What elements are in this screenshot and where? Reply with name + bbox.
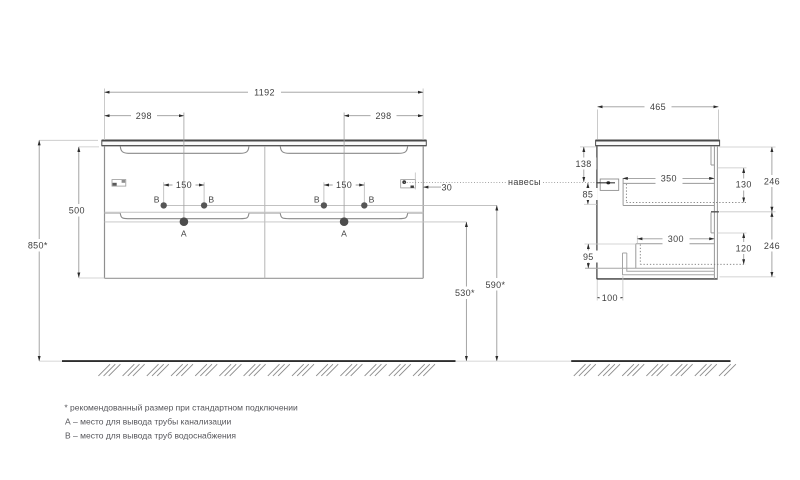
svg-text:350: 350 — [661, 174, 677, 184]
svg-text:B: B — [154, 194, 160, 204]
svg-text:530*: 530* — [455, 288, 475, 298]
svg-text:навесы: навесы — [508, 177, 541, 187]
svg-text:30: 30 — [441, 182, 452, 192]
svg-text:A: A — [181, 229, 187, 239]
svg-text:B: B — [369, 194, 375, 204]
svg-text:А – место для вывода трубы кан: А – место для вывода трубы канализации — [65, 417, 232, 427]
svg-text:95: 95 — [583, 252, 594, 262]
svg-text:300: 300 — [668, 234, 684, 244]
svg-text:85: 85 — [583, 189, 594, 199]
svg-text:100: 100 — [602, 293, 618, 303]
svg-text:1192: 1192 — [254, 87, 275, 97]
svg-text:* рекомендованный размер при с: * рекомендованный размер при стандартном… — [64, 403, 298, 413]
svg-text:500: 500 — [69, 206, 85, 216]
svg-text:590*: 590* — [485, 280, 505, 290]
svg-text:B: B — [208, 194, 214, 204]
svg-text:246: 246 — [764, 241, 780, 251]
svg-text:120: 120 — [736, 243, 752, 253]
svg-text:130: 130 — [736, 180, 752, 190]
svg-text:138: 138 — [576, 159, 592, 169]
svg-text:A: A — [341, 229, 347, 239]
svg-text:В – место для вывода труб водо: В – место для вывода труб водоснабжения — [65, 431, 236, 441]
svg-text:298: 298 — [375, 111, 391, 121]
svg-text:298: 298 — [136, 111, 152, 121]
svg-text:850*: 850* — [28, 241, 48, 251]
svg-text:246: 246 — [764, 176, 780, 186]
svg-text:B: B — [314, 194, 320, 204]
svg-text:465: 465 — [650, 102, 666, 112]
